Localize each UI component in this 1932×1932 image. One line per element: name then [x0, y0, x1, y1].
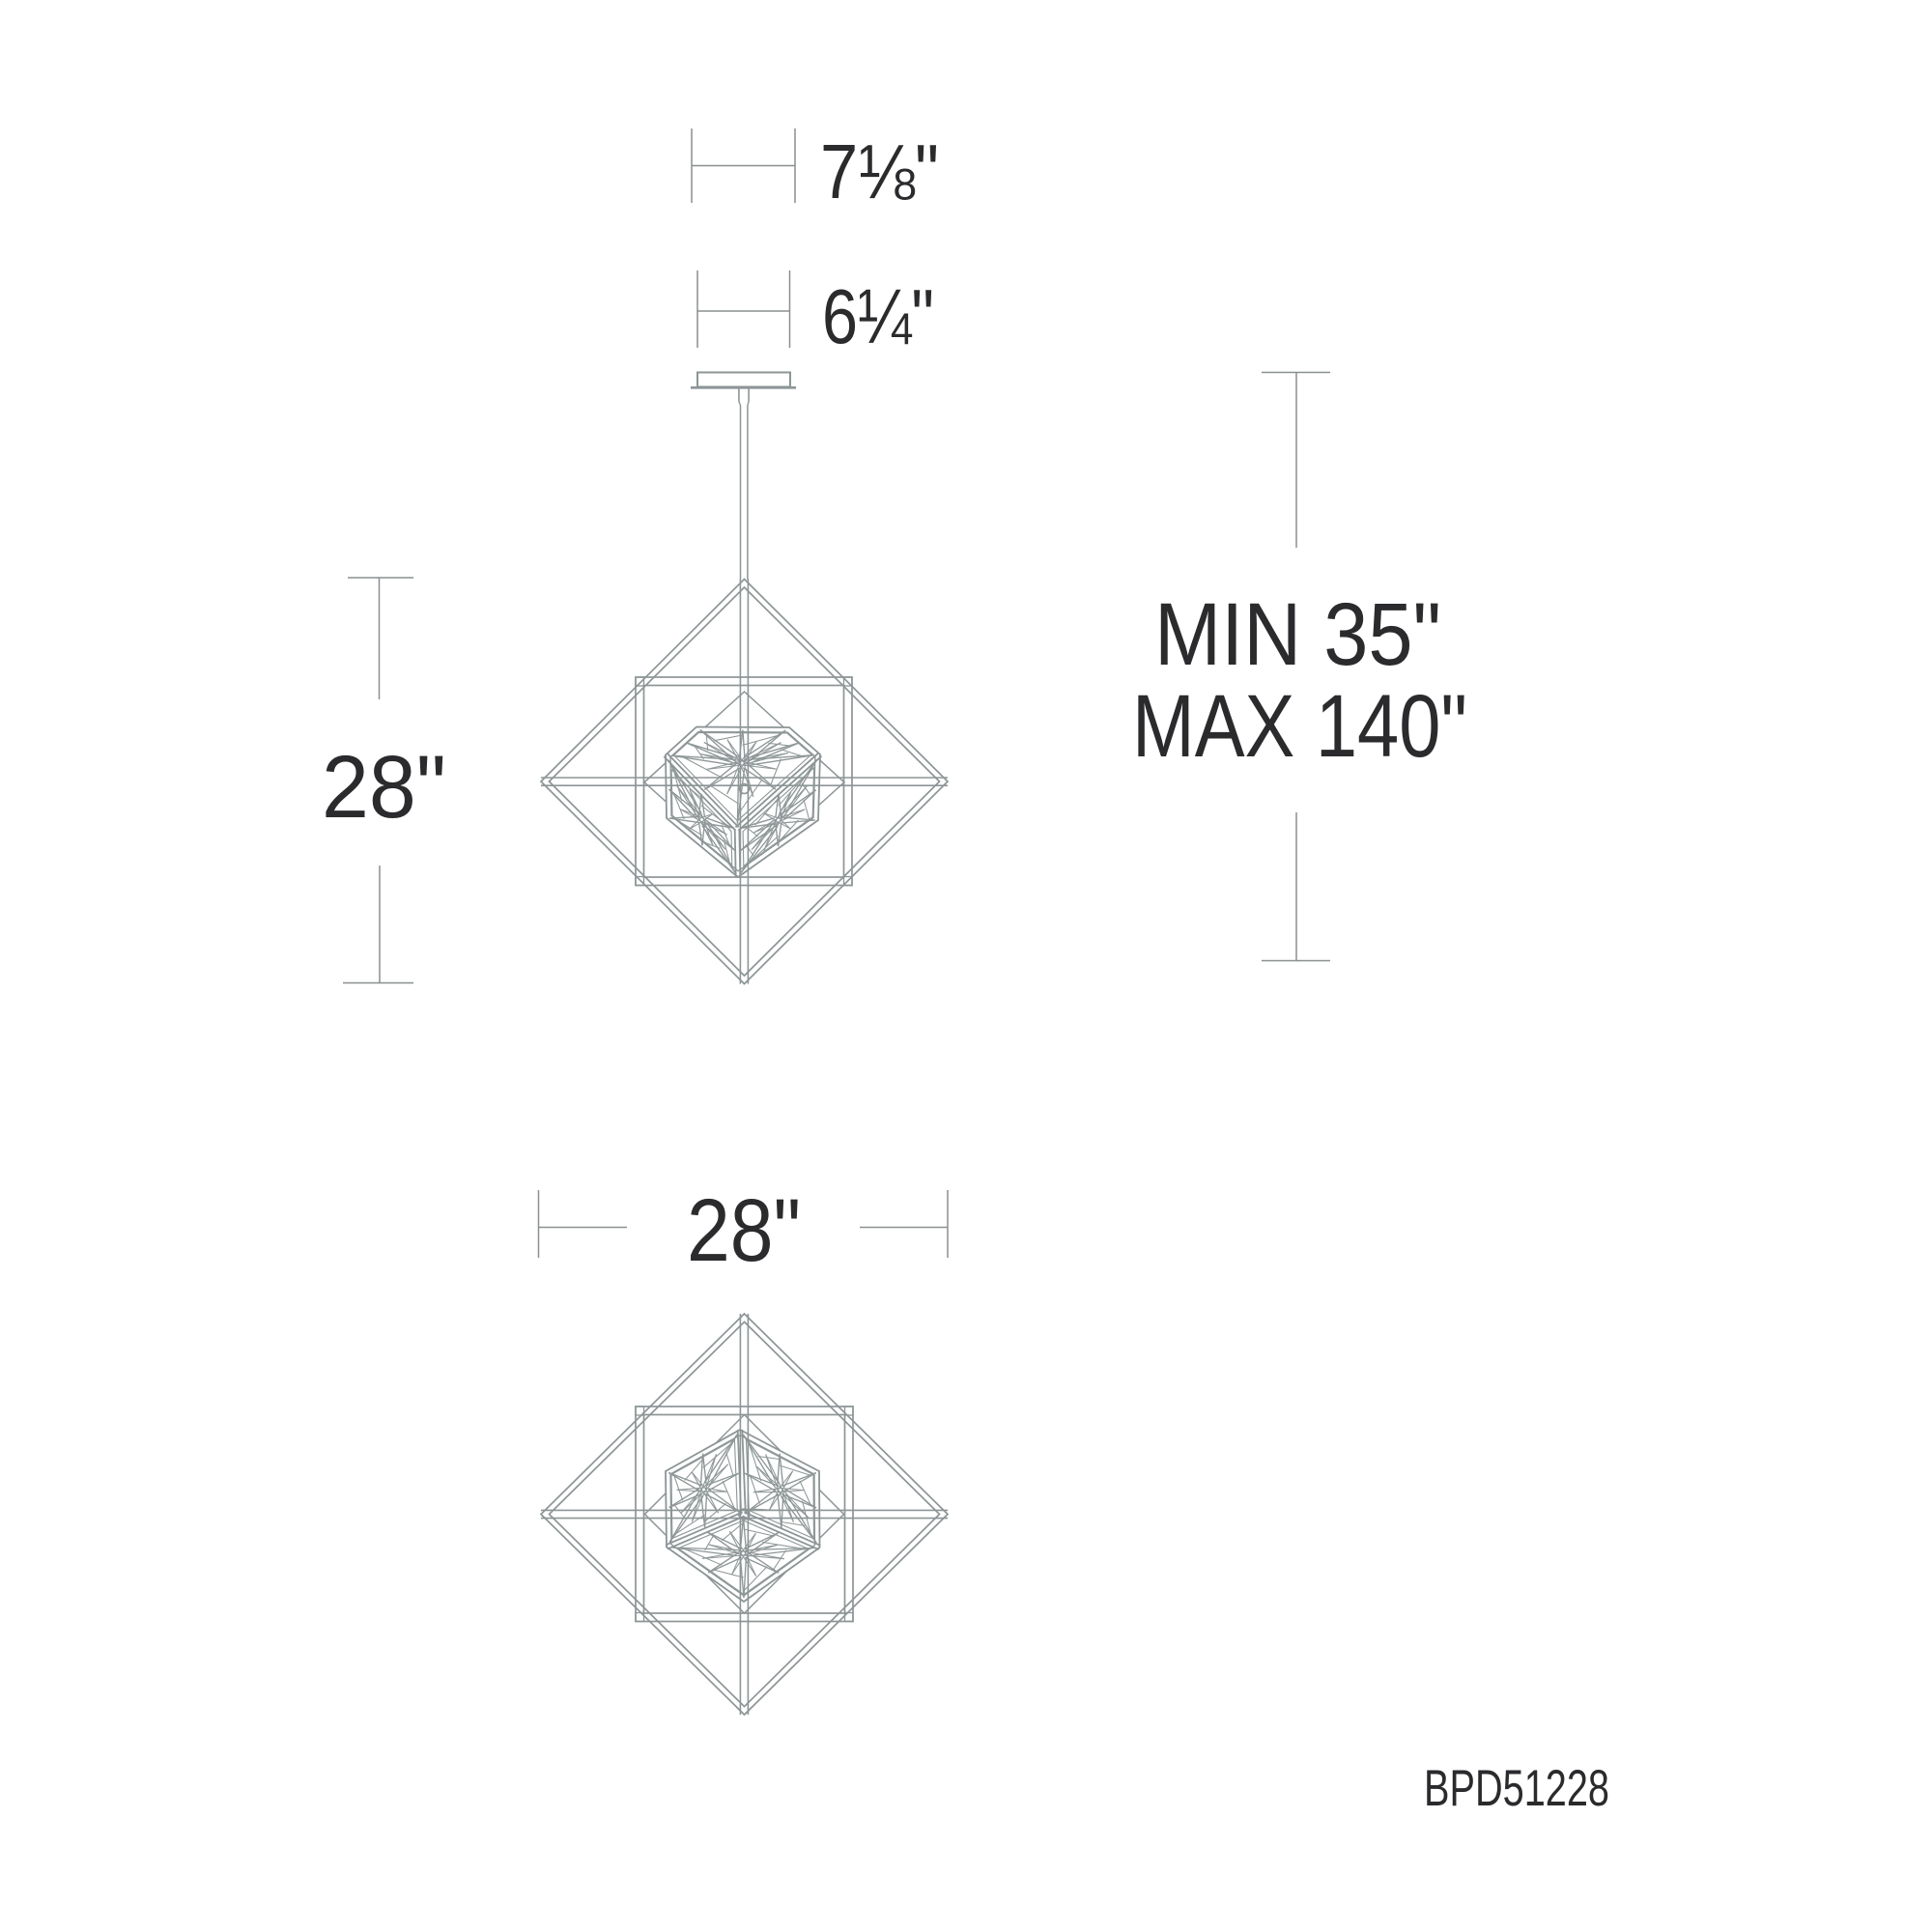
svg-text:MAX 140": MAX 140" — [1132, 677, 1467, 776]
svg-text:7⅛": 7⅛" — [820, 128, 939, 214]
svg-text:BPD51228: BPD51228 — [1424, 1760, 1609, 1817]
svg-text:28": 28" — [687, 1181, 801, 1280]
svg-text:6¼": 6¼" — [822, 273, 934, 359]
svg-text:28": 28" — [322, 738, 446, 837]
svg-text:MIN 35": MIN 35" — [1154, 585, 1441, 684]
